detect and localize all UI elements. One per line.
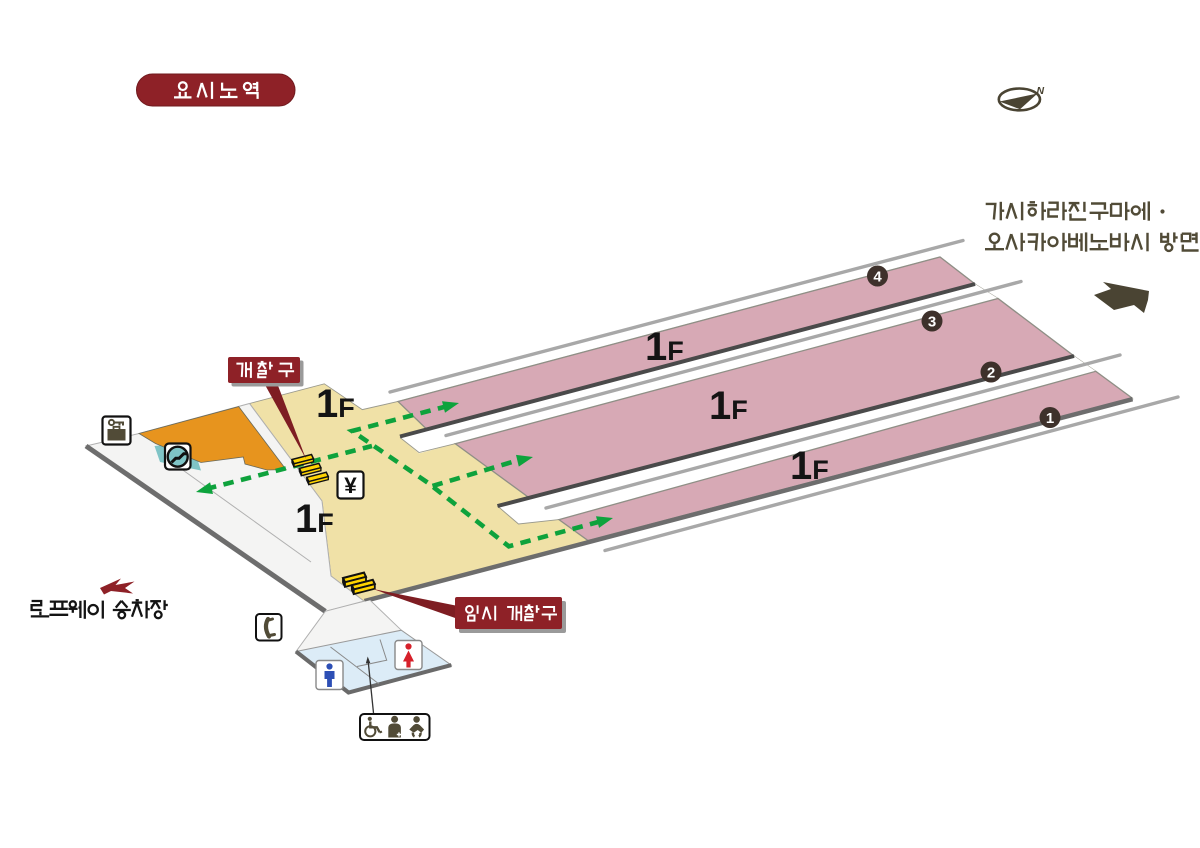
svg-text:N: N <box>1037 85 1045 97</box>
svg-text:¥: ¥ <box>344 473 357 498</box>
svg-text:1: 1 <box>1046 410 1054 427</box>
svg-text:2: 2 <box>987 364 995 381</box>
svg-text:4: 4 <box>873 268 882 285</box>
svg-text:3: 3 <box>928 313 936 330</box>
